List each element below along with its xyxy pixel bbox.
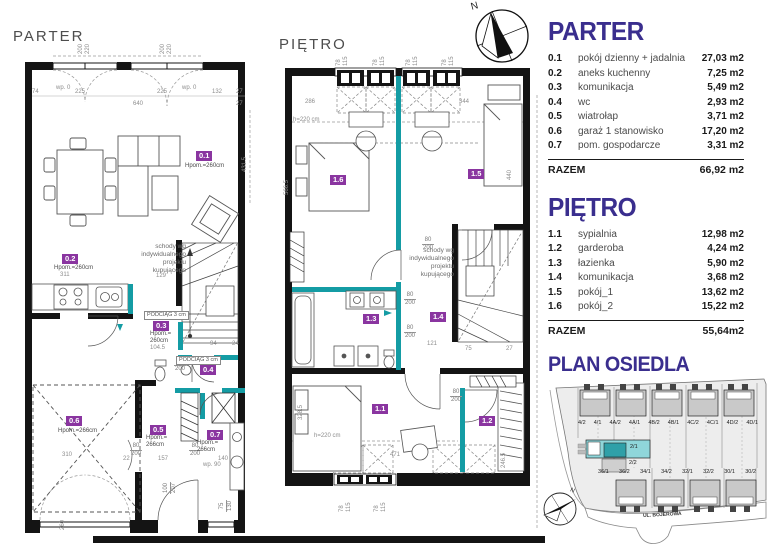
room-area: 7,25 m2 (707, 67, 744, 82)
pietro-plumbing-marker (384, 310, 392, 316)
lot-label: 4C/2 (687, 420, 699, 426)
dim-label: 115 (381, 502, 387, 512)
total-value: 66,92 m2 (700, 164, 744, 176)
room-area: 27,03 m2 (702, 52, 744, 67)
lot-label: 4/1 (594, 420, 602, 426)
site-lots-bottom-row: 36/136/234/134/232/132/230/130/2 (598, 469, 756, 475)
lot-label: 32/2 (703, 469, 714, 475)
room-name: komunikacja (578, 81, 707, 96)
room-badge-0-7: 0.7 (207, 430, 223, 440)
room-height: Hpom.=260cm (185, 163, 224, 170)
dim-label: 246.5 (501, 453, 507, 468)
room-height: Hpom.= 266cm (146, 435, 174, 449)
lot-label: 36/2 (619, 469, 630, 475)
window-sill-label: wp. 0 (56, 85, 70, 91)
pietro-desk-chair-11 (401, 426, 438, 460)
room-badge-1-2: 1.2 (479, 416, 495, 426)
room-name: wc (578, 96, 707, 111)
parter-plumbing-marker (117, 324, 123, 331)
parter-stairs (182, 243, 238, 343)
room-number: 1.3 (548, 257, 578, 272)
table-row: 1.6 pokój_2 15,22 m2 (548, 300, 744, 315)
table-row: 0.1 pokój dzienny + jadalnia 27,03 m2 (548, 52, 744, 67)
compass-rose-site (544, 493, 576, 525)
lot-label: 4D/2 (727, 420, 739, 426)
ceiling-height-label: h=220 cm (293, 117, 320, 123)
dim-label: 22 (123, 456, 130, 462)
dim-label: 471 (390, 452, 400, 458)
room-area: 3,71 m2 (707, 110, 744, 125)
door-size: 80200 (450, 389, 462, 404)
table-row: 1.1 sypialnia 12,98 m2 (548, 228, 744, 243)
room-badge-0-2: 0.2 (62, 254, 78, 264)
room-badge-1-1: 1.1 (372, 404, 388, 414)
dim-label: 344 (459, 99, 469, 105)
room-area: 12,98 m2 (702, 228, 744, 243)
room-area: 3,31 m2 (707, 139, 744, 154)
dim-label: 78 (336, 59, 342, 66)
legend-sidebar: PARTER 0.1 pokój dzienny + jadalnia 27,0… (548, 16, 758, 382)
room-badge-1-5: 1.5 (468, 169, 484, 179)
room-badge-0-4: 0.4 (200, 365, 216, 375)
room-name: aneks kuchenny (578, 67, 707, 82)
dim-label: 220 (167, 44, 173, 54)
lot-label: 4B/1 (668, 420, 679, 426)
lot-label: 30/1 (724, 469, 735, 475)
room-area: 2,93 m2 (707, 96, 744, 111)
dim-label: 115 (380, 56, 386, 66)
dim-label: 225 (75, 89, 85, 95)
dim-label: 225 (157, 89, 167, 95)
room-number: 1.2 (548, 242, 578, 257)
dim-label: 94 (210, 341, 217, 347)
lot-label: 4B/2 (648, 420, 659, 426)
room-area: 15,22 m2 (702, 300, 744, 315)
room-badge-1-6: 1.6 (330, 175, 346, 185)
parter-garage (33, 385, 140, 512)
dim-label: 27 (236, 101, 243, 107)
room-area: 5,49 m2 (707, 81, 744, 96)
room-area: 17,20 m2 (702, 125, 744, 140)
table-row: 1.2 garderoba 4,24 m2 (548, 242, 744, 257)
dim-label: 115 (343, 56, 349, 66)
room-number: 0.6 (548, 125, 578, 140)
room-badge-1-4: 1.4 (430, 312, 446, 322)
table-row: 0.5 wiatrołap 3,71 m2 (548, 110, 744, 125)
lot-label: 4D/1 (746, 420, 758, 426)
parter-wc-fixtures (155, 360, 244, 490)
dim-label: 78 (373, 59, 379, 66)
room-area: 4,24 m2 (707, 242, 744, 257)
dim-label: 200 (160, 44, 166, 54)
room-area: 13,62 m2 (702, 286, 744, 301)
room-number: 1.5 (548, 286, 578, 301)
lot-label: 30/2 (745, 469, 756, 475)
dim-label: 431.5 (242, 157, 248, 172)
dim-label: 200 (78, 44, 84, 54)
room-number: 0.3 (548, 81, 578, 96)
window-sill-label: wp. 90 (203, 462, 221, 468)
floorplan-page: PARTER wp. 0 wp. 0 74 225 225 132 27 640… (0, 0, 768, 546)
room-badge-0-1: 0.1 (196, 151, 212, 161)
room-number: 0.7 (548, 139, 578, 154)
pietro-bed-15 (484, 85, 522, 186)
dim-label: 566.5 (284, 180, 290, 195)
lot-label: 34/1 (640, 469, 651, 475)
dim-label: 640 (133, 101, 143, 107)
room-number: 1.4 (548, 271, 578, 286)
dim-label: 132 (212, 89, 222, 95)
table-row: 1.4 komunikacja 3,68 m2 (548, 271, 744, 286)
room-name: pokój_1 (578, 286, 702, 301)
dim-label: 121 (427, 341, 437, 347)
compass-rose-top (476, 10, 528, 62)
pietro-plan-title: PIĘTRO (279, 36, 347, 53)
dim-label: 115 (449, 56, 455, 66)
dim-label: 260 (60, 520, 66, 530)
lot-label: 4/2 (578, 420, 586, 426)
legend-pietro-title: PIĘTRO (548, 192, 745, 223)
dim-label: 328.5 (298, 405, 304, 420)
parter-kitchen (32, 284, 128, 310)
room-badge-0-6: 0.6 (66, 416, 82, 426)
site-plan-title: PLAN OSIEDLA (548, 353, 745, 377)
table-row: 1.3 łazienka 5,90 m2 (548, 257, 744, 272)
room-badge-1-3: 1.3 (363, 314, 379, 324)
door-size: 80200 (404, 292, 416, 307)
room-name: wiatrołap (578, 110, 707, 125)
lot-label: 34/2 (661, 469, 672, 475)
room-height: Hpom.= 260cm (150, 331, 176, 345)
window-size: 75130 (219, 500, 234, 512)
room-height: Hpom.= 266cm (197, 440, 225, 454)
door-size: 80200 (130, 443, 142, 458)
dim-label: 74 (32, 89, 39, 95)
parter-radiator (181, 393, 198, 441)
parter-plan-title: PARTER (13, 28, 84, 45)
room-badge-0-3: 0.3 (153, 321, 169, 331)
stairs-note: schody wg indywidualnego projektu kupują… (404, 247, 454, 280)
dim-label: 78 (374, 505, 380, 512)
dim-label: 75 (465, 346, 472, 352)
lot-label: 4C/1 (707, 420, 719, 426)
room-name: garderoba (578, 242, 707, 257)
site-plan-map (544, 379, 766, 544)
dim-label: 78 (442, 59, 448, 66)
dim-label: 27 (506, 346, 513, 352)
room-number: 0.2 (548, 67, 578, 82)
ceiling-height-label: h=220 cm (314, 433, 341, 439)
room-height: Hpom.=266cm (58, 428, 97, 435)
room-name: sypialnia (578, 228, 702, 243)
room-number: 0.4 (548, 96, 578, 111)
table-row: 0.6 garaż 1 stanowisko 17,20 m2 (548, 125, 744, 140)
room-number: 1.1 (548, 228, 578, 243)
parter-sofa (118, 136, 180, 216)
lot-label-highlighted: 2/1 (630, 444, 638, 450)
door-size: 100207 (163, 482, 178, 494)
total-label: RAZEM (548, 325, 585, 337)
dim-label: 78 (406, 59, 412, 66)
window-sill-label: wp. 0 (182, 85, 196, 91)
pietro-bathroom (292, 291, 396, 368)
bottom-frame-bar (93, 536, 545, 543)
dim-label: 311 (60, 272, 70, 278)
room-name: pokój_2 (578, 300, 702, 315)
total-value: 55,64m2 (703, 325, 744, 337)
table-row: 0.2 aneks kuchenny 7,25 m2 (548, 67, 744, 82)
legend-parter-title: PARTER (548, 16, 745, 47)
dim-label: 157 (158, 456, 168, 462)
legend-pietro-total: RAZEM 55,64m2 (548, 320, 744, 337)
room-name: pom. gospodarcze (578, 139, 707, 154)
table-row: 0.4 wc 2,93 m2 (548, 96, 744, 111)
legend-parter-total: RAZEM 66,92 m2 (548, 159, 744, 176)
room-name: łazienka (578, 257, 707, 272)
legend-pietro-table: 1.1 sypialnia 12,98 m2 1.2 garderoba 4,2… (548, 228, 744, 315)
table-row: 1.5 pokój_1 13,62 m2 (548, 286, 744, 301)
dim-label: 78 (339, 505, 345, 512)
lot-label: 4A/1 (629, 420, 640, 426)
stairs-note: schody wg indywidualnego projektu kupują… (128, 243, 186, 276)
dim-label: 115 (346, 502, 352, 512)
room-number: 0.1 (548, 52, 578, 67)
lot-label: 36/1 (598, 469, 609, 475)
room-name: komunikacja (578, 271, 707, 286)
room-area: 3,68 m2 (707, 271, 744, 286)
pietro-bed-11 (293, 386, 361, 471)
room-number: 0.5 (548, 110, 578, 125)
lot-label: 2/2 (629, 460, 637, 466)
door-size: 80200 (404, 325, 416, 340)
parter-dining-table (44, 138, 116, 226)
dim-label: 310 (62, 452, 72, 458)
beam-note: PODCIĄG 3 cm (176, 356, 221, 365)
dim-label: 140 (218, 456, 228, 462)
legend-parter-table: 0.1 pokój dzienny + jadalnia 27,03 m2 0.… (548, 52, 744, 154)
table-row: 0.3 komunikacja 5,49 m2 (548, 81, 744, 96)
total-label: RAZEM (548, 164, 585, 176)
room-number: 1.6 (548, 300, 578, 315)
lot-label: 4A/2 (610, 420, 621, 426)
pietro-stairs (458, 230, 523, 342)
site-lots-top-row: 4/24/14A/24A/14B/24B/14C/24C/14D/24D/1 (578, 420, 758, 426)
room-badge-0-5: 0.5 (150, 425, 166, 435)
lot-label: 32/1 (682, 469, 693, 475)
dim-label: 220 (85, 44, 91, 54)
table-row: 0.7 pom. gospodarcze 3,31 m2 (548, 139, 744, 154)
room-area: 5,90 m2 (707, 257, 744, 272)
dim-label: 286 (305, 99, 315, 105)
beam-note: PODCIĄG 3 cm (144, 311, 189, 320)
parter-armchair (192, 196, 239, 243)
dim-label: 115 (413, 56, 419, 66)
room-name: garaż 1 stanowisko (578, 125, 702, 140)
dim-label: 104.5 (150, 345, 165, 351)
room-name: pokój dzienny + jadalnia (578, 52, 702, 67)
dim-label: 440 (507, 170, 513, 180)
room-height: Hpom.=260cm (54, 265, 93, 272)
dim-label: 24 (232, 341, 239, 347)
dim-label: 27 (236, 89, 243, 95)
